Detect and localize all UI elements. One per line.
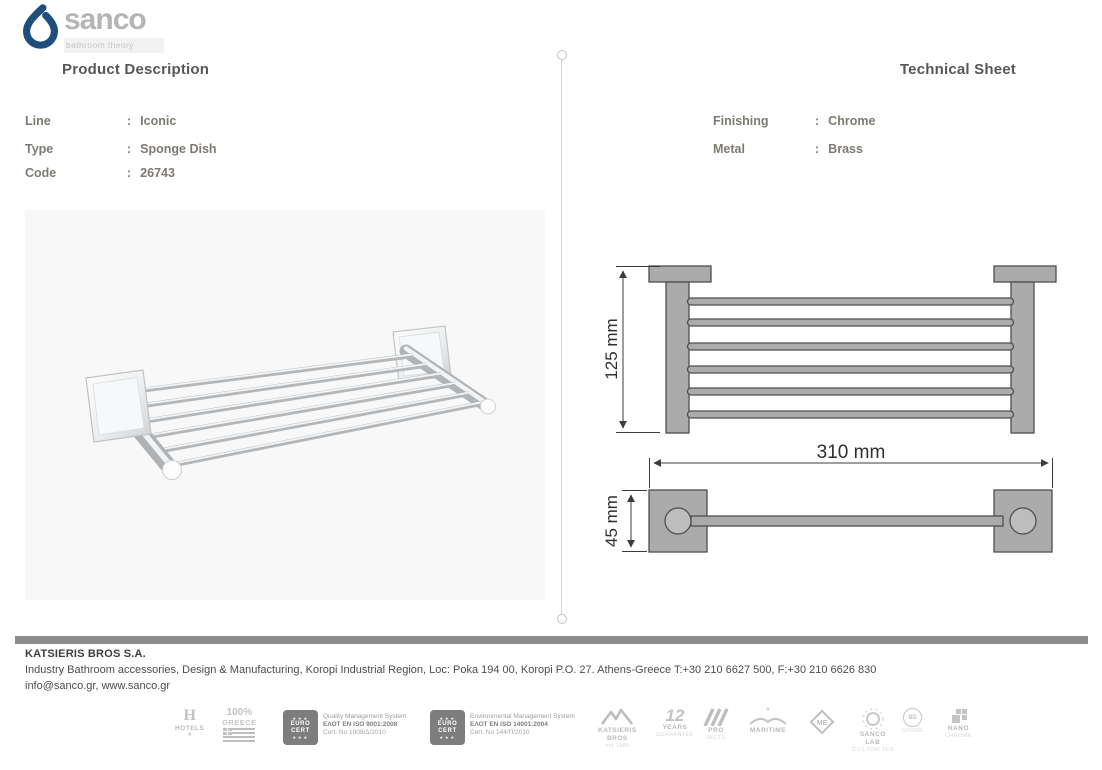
svg-text:ME: ME bbox=[817, 720, 828, 727]
star-icon: ★ bbox=[765, 708, 770, 713]
type-row: Type:Sponge Dish bbox=[25, 142, 217, 156]
metal-row: Metal:Brass bbox=[713, 142, 863, 156]
code-value: 26743 bbox=[140, 166, 175, 180]
brand-name: sanco bbox=[64, 5, 164, 35]
line-value: Iconic bbox=[140, 114, 176, 128]
eurocert-quality-badge: ★★★ EURO CERT ★★★ Quality Management Sys… bbox=[283, 710, 406, 745]
pixels-icon bbox=[948, 708, 968, 724]
diagonal-lines-icon bbox=[702, 708, 730, 726]
footer-contacts: info@sanco.gr, www.sanco.gr bbox=[25, 680, 170, 692]
technical-sheet-title: Technical Sheet bbox=[713, 61, 1016, 78]
line-label: Line bbox=[25, 114, 127, 128]
type-label: Type bbox=[25, 142, 127, 156]
metal-label: Metal bbox=[713, 142, 815, 156]
eurocert-icon: ★★★ EURO CERT ★★★ bbox=[430, 710, 465, 745]
mountain-icon bbox=[599, 708, 635, 726]
lightbulb-icon bbox=[861, 708, 885, 730]
line-row: Line:Iconic bbox=[25, 114, 176, 128]
type-value: Sponge Dish bbox=[140, 142, 216, 156]
eurocert-icon: ★★★ EURO CERT ★★★ bbox=[283, 710, 318, 745]
sanco-logo: sanco bathroom theory bbox=[18, 3, 164, 53]
footer-address: Industry Bathroom accessories, Design & … bbox=[25, 664, 876, 676]
years-number: 12 bbox=[665, 708, 684, 723]
katsieris-bros-badge: KATSIERIS BROS est 1980 bbox=[598, 708, 637, 749]
divider-top-circle bbox=[557, 50, 567, 60]
dim-depth-label: 45 mm bbox=[602, 495, 621, 547]
me-badge: ME bbox=[808, 708, 836, 736]
circle-icon: BS bbox=[903, 708, 922, 727]
certification-strip: H HOTELS ★ 100% GREECE ★★★ EURO CERT ★★★ bbox=[0, 704, 1102, 756]
finishing-label: Finishing bbox=[713, 114, 815, 128]
code-row: Code:26743 bbox=[25, 166, 175, 180]
code-label: Code bbox=[25, 166, 127, 180]
finishing-row: Finishing:Chrome bbox=[713, 114, 875, 128]
bs-spore-badge: BS SPORE bbox=[902, 708, 923, 734]
technical-drawing: 125 mm 310 mm 45 mm bbox=[600, 250, 1085, 580]
brand-tagline: bathroom theory bbox=[64, 38, 164, 53]
sponge-dish-image bbox=[25, 210, 545, 600]
greece-100-badge: 100% GREECE bbox=[222, 708, 257, 743]
sanco-lab-badge: SANCO LAB CUS TOM TES bbox=[852, 708, 894, 753]
dim-height-label: 125 mm bbox=[602, 318, 621, 379]
pro-badge: PRO JECTS bbox=[702, 708, 730, 741]
metal-value: Brass bbox=[828, 142, 863, 156]
product-description-title: Product Description bbox=[62, 61, 209, 78]
maritime-badge: ★ MARITIME bbox=[748, 708, 788, 734]
hotels-icon: H bbox=[183, 708, 195, 724]
diamond-icon: ME bbox=[808, 708, 836, 736]
product-photo bbox=[25, 210, 545, 600]
nano-chrome-badge: NANO CHROME bbox=[945, 708, 972, 739]
hotels-badge: H HOTELS ★ bbox=[175, 708, 204, 738]
waves-icon bbox=[748, 714, 788, 726]
12-years-badge: 12 YEARS GUARANTEE bbox=[656, 708, 694, 738]
footer-divider-bar bbox=[15, 636, 1088, 644]
column-divider bbox=[561, 60, 562, 614]
dim-width-label: 310 mm bbox=[817, 442, 886, 463]
star-icon: ★ bbox=[187, 733, 192, 738]
footer-company: KATSIERIS BROS S.A. bbox=[25, 648, 146, 660]
finishing-value: Chrome bbox=[828, 114, 875, 128]
sanco-drop-icon bbox=[18, 3, 62, 49]
eurocert-environmental-badge: ★★★ EURO CERT ★★★ Environmental Manageme… bbox=[430, 710, 575, 745]
product-sheet-page: sanco bathroom theory Product Descriptio… bbox=[0, 0, 1102, 770]
divider-bottom-circle bbox=[557, 614, 567, 624]
greek-flag-icon bbox=[223, 728, 255, 743]
